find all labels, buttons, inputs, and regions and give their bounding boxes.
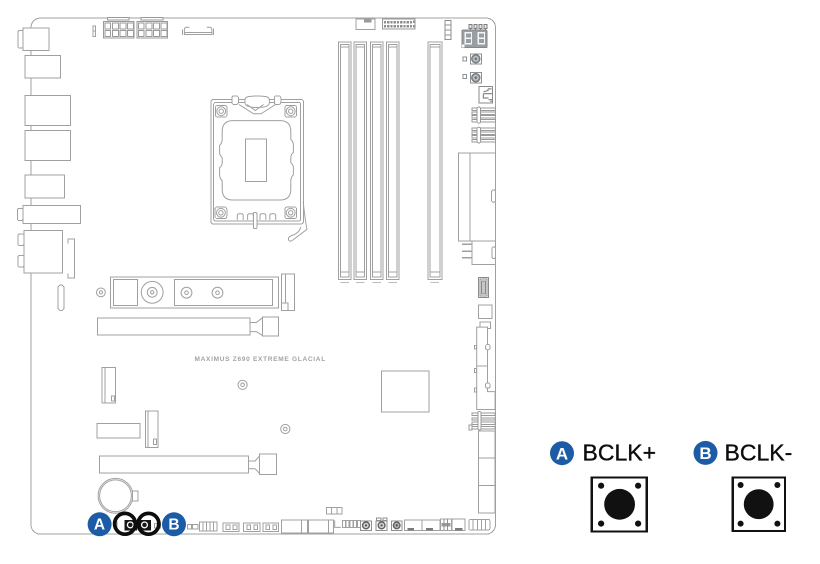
svg-text:B: B	[699, 444, 711, 463]
svg-text:BCLK+: BCLK+	[583, 440, 657, 466]
svg-text:A: A	[94, 516, 105, 533]
svg-text:BCLK-: BCLK-	[725, 440, 793, 466]
svg-text:A: A	[556, 444, 568, 463]
svg-text:MAXIMUS Z690 EXTREME GLACIAL: MAXIMUS Z690 EXTREME GLACIAL	[195, 356, 326, 363]
svg-text:B: B	[168, 516, 179, 533]
